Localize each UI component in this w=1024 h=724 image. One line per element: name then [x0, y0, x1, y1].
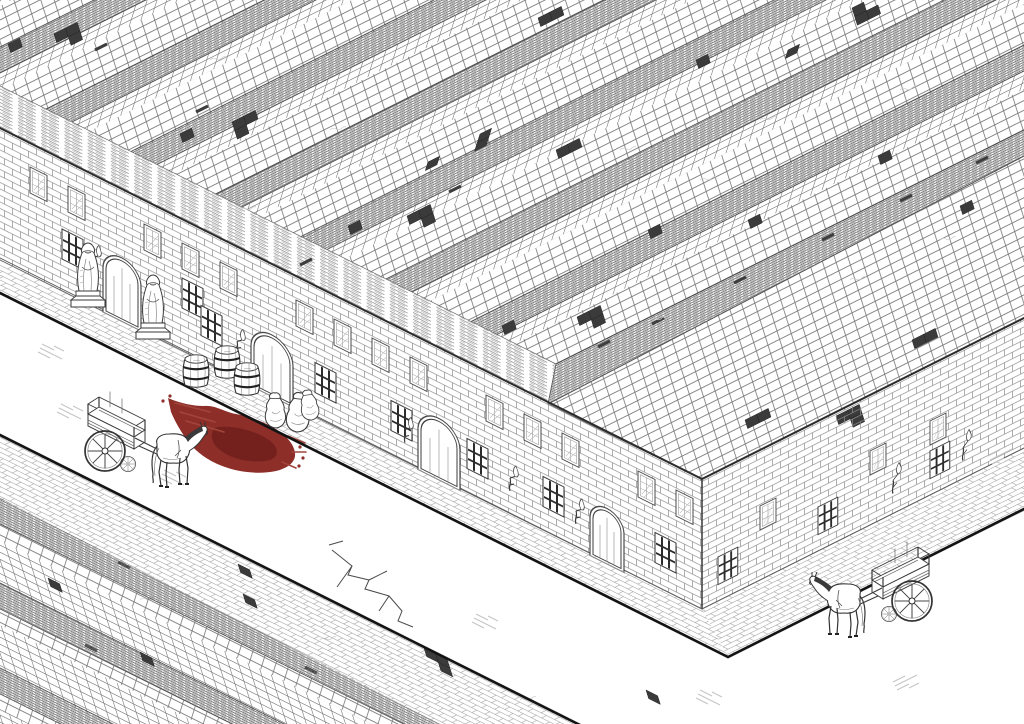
barrel[interactable]	[183, 355, 209, 389]
warehouse-district-scene	[0, 0, 1024, 724]
barrel[interactable]	[234, 363, 260, 397]
illustration-stage	[0, 0, 1024, 724]
